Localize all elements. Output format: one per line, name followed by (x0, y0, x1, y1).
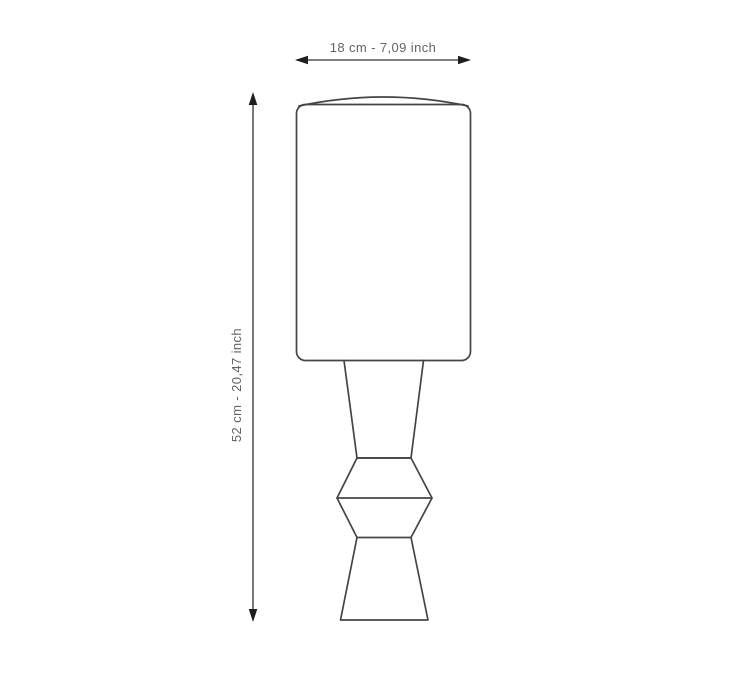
width-dimension: 18 cm - 7,09 inch (295, 40, 471, 64)
lamp-dimension-diagram-page: 18 cm - 7,09 inch 52 cm - 20,47 inch (0, 0, 744, 678)
lampshade-body (297, 105, 471, 361)
arrow-up-icon (249, 92, 258, 105)
arrow-down-icon (249, 609, 258, 622)
lamp-neck (344, 361, 424, 459)
arrow-right-icon (458, 56, 471, 65)
lamp-foot (341, 538, 429, 621)
lamp-dimension-drawing: 18 cm - 7,09 inch 52 cm - 20,47 inch (0, 0, 744, 678)
width-dimension-label: 18 cm - 7,09 inch (330, 40, 437, 55)
height-dimension: 52 cm - 20,47 inch (229, 92, 257, 622)
arrow-left-icon (295, 56, 308, 65)
height-dimension-label: 52 cm - 20,47 inch (229, 328, 244, 442)
lamp-outline (297, 97, 471, 620)
